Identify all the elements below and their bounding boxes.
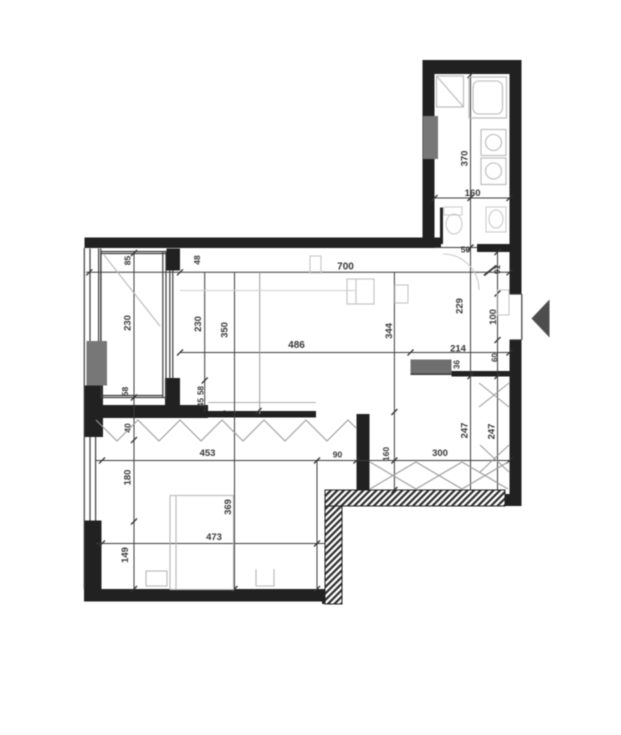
svg-text:90: 90 <box>333 450 343 460</box>
svg-text:486: 486 <box>288 340 305 351</box>
svg-text:229: 229 <box>455 298 466 314</box>
svg-text:230: 230 <box>123 315 134 331</box>
svg-text:300: 300 <box>432 448 448 459</box>
svg-text:180: 180 <box>123 470 134 486</box>
svg-text:369: 369 <box>223 499 234 515</box>
svg-text:247: 247 <box>487 424 498 440</box>
svg-text:350: 350 <box>220 322 231 338</box>
svg-text:700: 700 <box>337 262 354 273</box>
svg-text:160: 160 <box>465 188 481 199</box>
svg-text:230: 230 <box>193 316 204 332</box>
svg-text:58: 58 <box>120 387 130 397</box>
svg-text:85: 85 <box>123 256 133 266</box>
svg-text:48: 48 <box>192 255 202 265</box>
svg-text:453: 453 <box>200 448 216 459</box>
svg-text:58: 58 <box>197 386 206 395</box>
svg-text:60: 60 <box>491 353 500 362</box>
svg-text:370: 370 <box>460 151 471 167</box>
svg-text:214: 214 <box>450 344 467 355</box>
svg-text:247: 247 <box>460 423 471 439</box>
svg-text:45: 45 <box>197 398 206 407</box>
svg-text:91: 91 <box>493 265 502 274</box>
svg-text:160: 160 <box>381 447 391 461</box>
svg-text:50: 50 <box>461 245 471 255</box>
svg-text:344: 344 <box>384 322 395 339</box>
svg-text:473: 473 <box>206 532 222 543</box>
svg-text:36: 36 <box>453 360 462 369</box>
svg-text:149: 149 <box>120 547 131 563</box>
